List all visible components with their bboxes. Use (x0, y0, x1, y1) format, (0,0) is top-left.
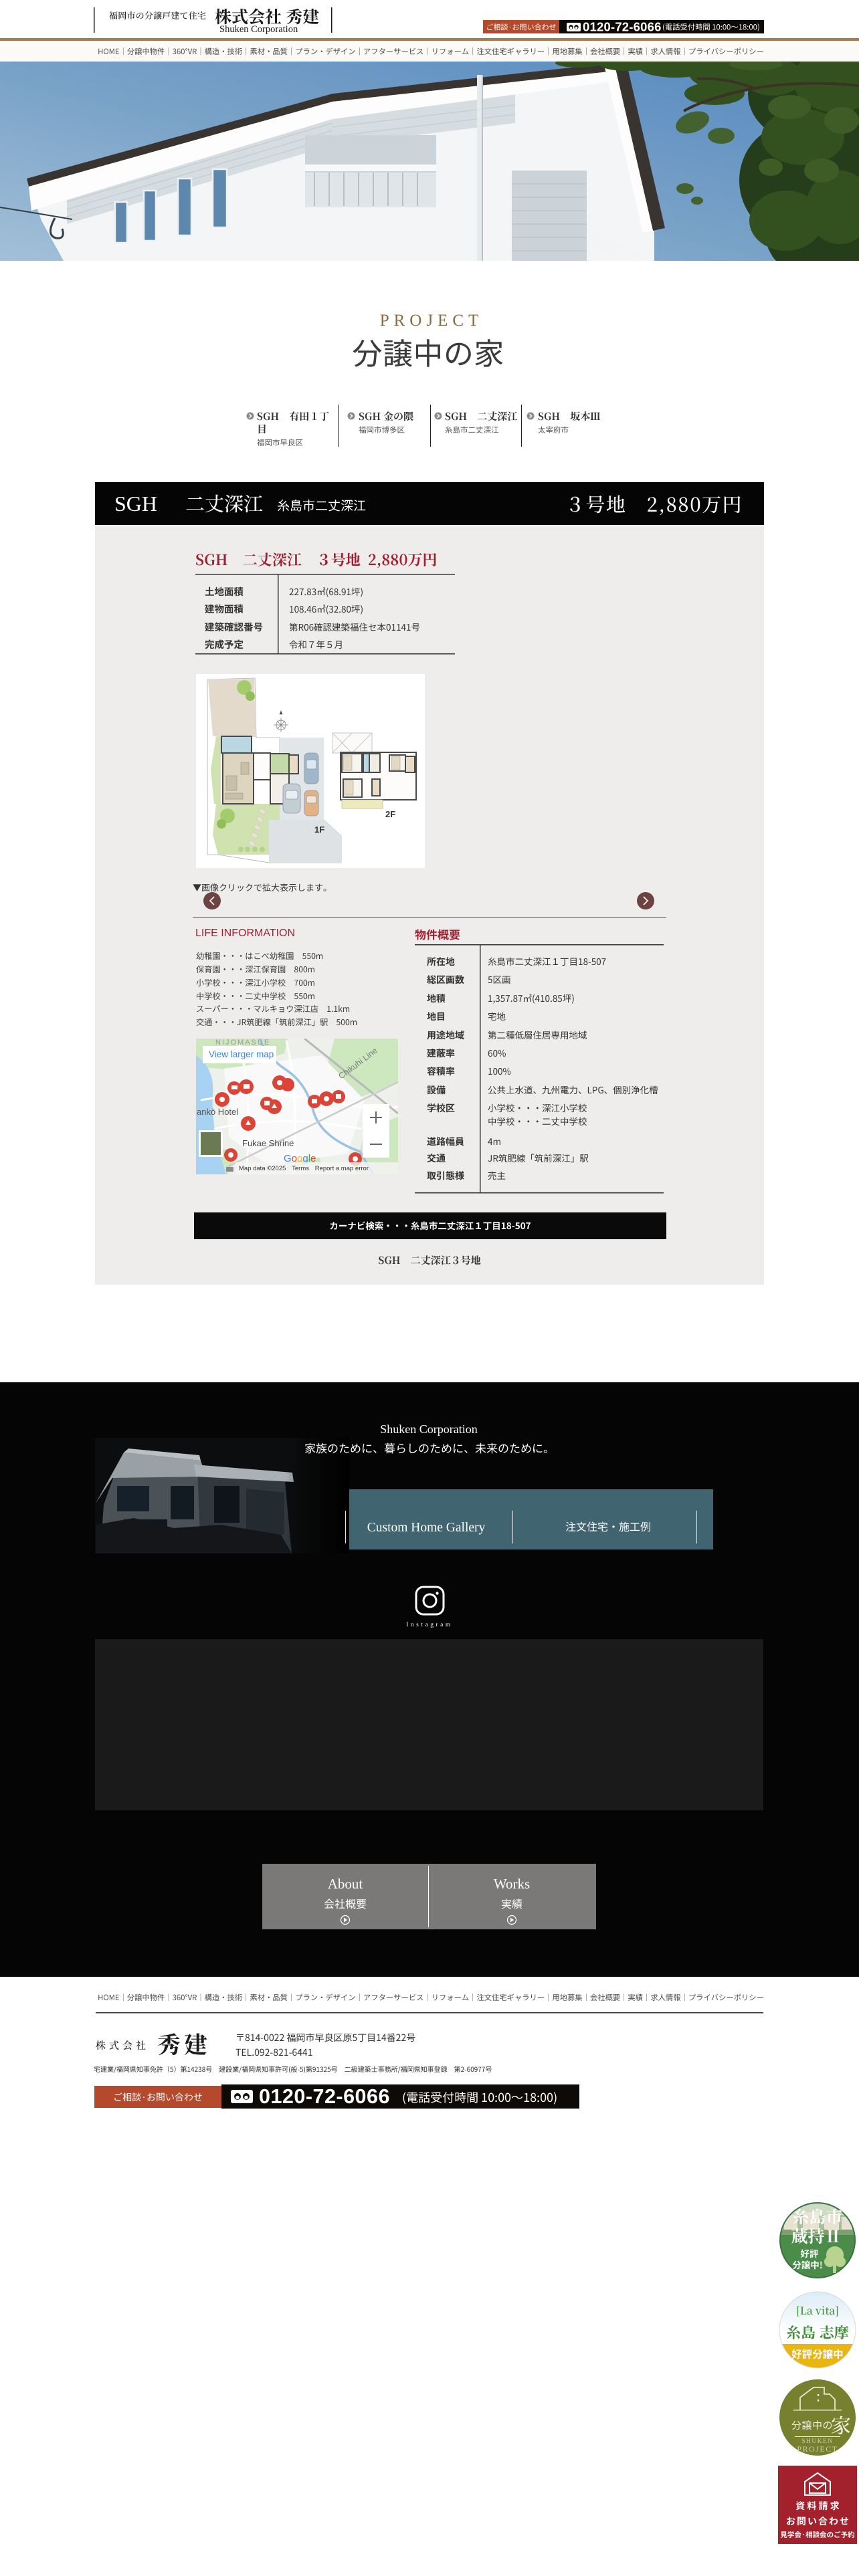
svg-text:View larger map: View larger map (209, 1049, 274, 1059)
svg-text:2F: 2F (385, 809, 395, 819)
svg-text:Fukae Shrine: Fukae Shrine (242, 1138, 294, 1148)
svg-text:PROJECT: PROJECT (380, 312, 484, 330)
svg-text:0120-72-6066: 0120-72-6066 (259, 2085, 390, 2108)
svg-text:0120-72-6066: 0120-72-6066 (583, 20, 662, 34)
svg-text:LIFE INFORMATION: LIFE INFORMATION (195, 928, 295, 939)
svg-text:Custom Home Gallery: Custom Home Gallery (367, 1521, 486, 1535)
svg-text:About: About (328, 1876, 363, 1892)
svg-text:1F: 1F (314, 825, 324, 835)
svg-text:Shuken Corporation: Shuken Corporation (219, 24, 298, 35)
svg-text:Instagram: Instagram (406, 1622, 453, 1628)
svg-text:NIJOMASUE: NIJOMASUE (215, 1039, 270, 1047)
svg-text:PROJECT: PROJECT (797, 2444, 838, 2454)
svg-text:Works: Works (494, 1876, 530, 1892)
svg-text:ankō Hotel: ankō Hotel (197, 1107, 238, 1117)
svg-text:Map data ©2025ㅤTermsㅤReport a: Map data ©2025ㅤTermsㅤReport a map error (239, 1165, 369, 1172)
svg-text:Shuken Corporation: Shuken Corporation (380, 1422, 478, 1436)
svg-text:SGH: SGH (114, 492, 157, 516)
